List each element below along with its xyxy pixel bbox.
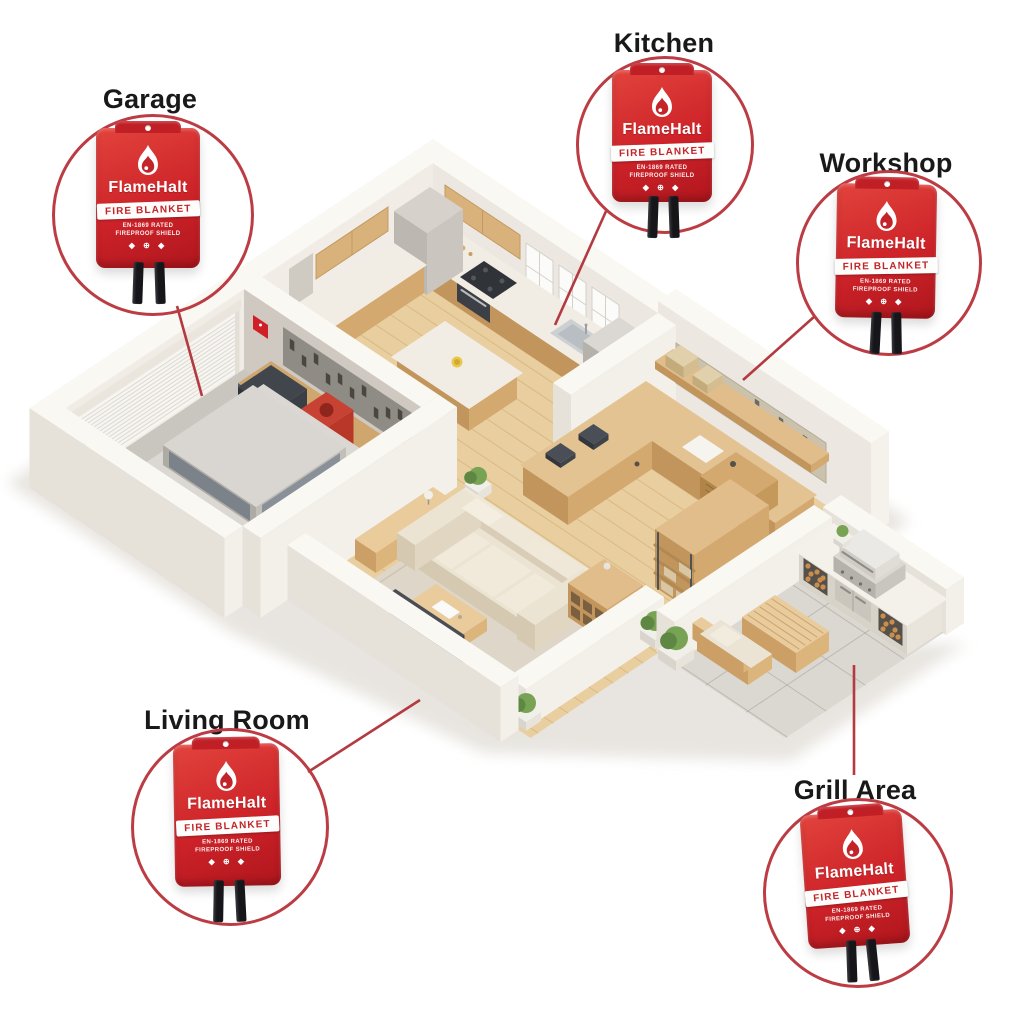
package-fine-print: EN-1869 RATED FIREPROOF SHIELD ◆ ⊕ ◆ [629,164,694,193]
brand-name: FlameHalt [622,121,701,139]
package-hang-hole [659,67,665,73]
callout-label: Garage [40,84,260,115]
callout-label: Kitchen [574,28,754,59]
product-name: FIRE BLANKET [610,142,713,162]
package-fine-print: EN-1869 RATED FIREPROOF SHIELD ◆ ⊕ ◆ [115,222,180,251]
strap [647,196,658,238]
strap [846,940,857,982]
package-hang-hole [884,181,890,187]
certification-icons: ◆ ⊕ ◆ [115,240,180,251]
package-fine-print: EN-1869 RATED FIREPROOF SHIELD ◆ ⊕ ◆ [195,837,261,867]
product-name: FIRE BLANKET [834,257,937,275]
certification-icons: ◆ ⊕ ◆ [629,182,694,193]
product-name: FIRE BLANKET [804,881,908,908]
package-hang-hole [145,125,151,131]
fire-blanket-package: FlameHalt FIRE BLANKET EN-1869 RATED FIR… [799,809,910,950]
callout-grill-area: Grill Area FlameHalt FIRE BLANKET EN-186… [761,775,949,1021]
strap [133,262,144,304]
brand-name: FlameHalt [814,860,894,883]
flame-logo-icon [133,143,163,177]
flame-logo-icon [836,826,868,862]
brand-name: FlameHalt [108,179,187,197]
strap [891,312,902,354]
fire-blanket-package: FlameHalt FIRE BLANKET EN-1869 RATED FIR… [612,70,712,202]
callout-living-room: Living Room FlameHalt FIRE BLANKET EN-18… [129,705,325,1005]
package-hang-hole [223,741,229,747]
certification-icons: ◆ ⊕ ◆ [852,295,917,307]
callout-garage: Garage FlameHalt FIRE BLANKET EN-1869 RA… [40,84,260,384]
product-name: FIRE BLANKET [176,815,279,836]
package-fine-print: EN-1869 RATED FIREPROOF SHIELD ◆ ⊕ ◆ [852,277,918,307]
flame-logo-icon [871,199,902,234]
flame-logo-icon [647,85,677,119]
certification-icons: ◆ ⊕ ◆ [195,855,260,867]
strap [155,262,166,304]
flame-logo-icon [211,759,242,794]
package-fine-print: EN-1869 RATED FIREPROOF SHIELD ◆ ⊕ ◆ [824,904,891,937]
fire-blanket-package: FlameHalt FIRE BLANKET EN-1869 RATED FIR… [96,128,200,268]
product-name: FIRE BLANKET [96,200,199,220]
callout-kitchen: Kitchen FlameHalt FIRE BLANKET EN-1869 R… [574,28,754,298]
fire-blanket-placement-infographic: Garage FlameHalt FIRE BLANKET EN-1869 RA… [0,0,1024,1024]
brand-name: FlameHalt [846,234,925,253]
brand-name: FlameHalt [187,794,266,813]
callout-workshop: Workshop FlameHalt FIRE BLANKET EN-1869 … [794,148,978,438]
fire-blanket-package: FlameHalt FIRE BLANKET EN-1869 RATED FIR… [173,743,281,887]
strap [213,880,224,922]
strap [668,196,679,238]
fire-blanket-package: FlameHalt FIRE BLANKET EN-1869 RATED FIR… [835,183,937,319]
